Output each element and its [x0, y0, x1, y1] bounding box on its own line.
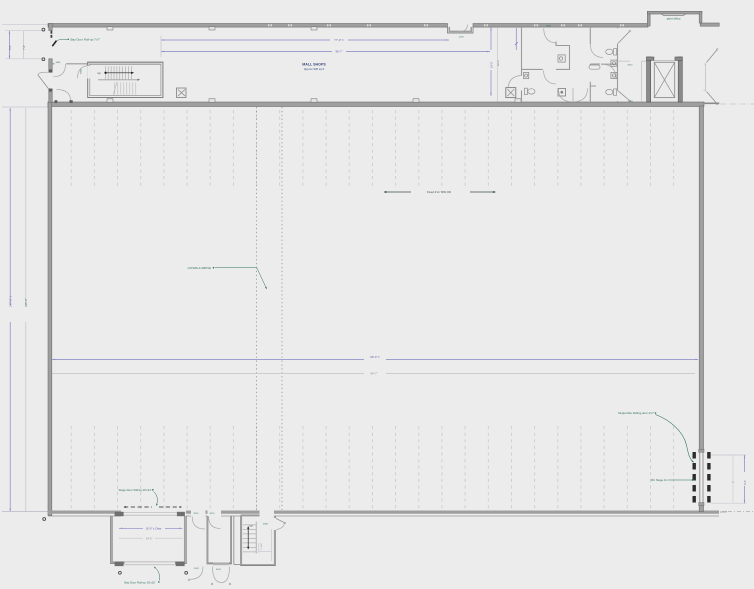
svg-text:96'-7": 96'-7" [335, 50, 342, 54]
svg-text:gated drilling: gated drilling [667, 18, 681, 21]
svg-text:6070: 6070 [216, 569, 222, 571]
svg-text:3070: 3070 [628, 65, 634, 67]
svg-text:77'-0" ±: 77'-0" ± [334, 38, 344, 42]
svg-text:Stage Door Sliding 16'x14': Stage Door Sliding 16'x14' [119, 488, 152, 492]
svg-text:3070: 3070 [459, 37, 465, 39]
svg-text:Single Man Rolling door 4'x7': Single Man Rolling door 4'x7' [618, 411, 655, 415]
svg-text:245'-0": 245'-0" [24, 298, 28, 307]
svg-text:3068: 3068 [546, 26, 552, 28]
svg-text:14'-0": 14'-0" [146, 536, 153, 540]
svg-text:3070: 3070 [194, 568, 200, 570]
svg-text:3070: 3070 [210, 513, 216, 515]
svg-text:Fixed 2'x1' MW OD: Fixed 2'x1' MW OD [427, 190, 451, 194]
svg-text:3068: 3068 [263, 524, 269, 526]
svg-text:CATWALK ABOVE: CATWALK ABOVE [188, 266, 212, 270]
svg-text:3668: 3668 [81, 68, 83, 74]
svg-text:4'-0": 4'-0" [743, 480, 747, 485]
svg-text:Bay Door Roll-up 10'x10': Bay Door Roll-up 10'x10' [125, 580, 156, 584]
svg-text:up: up [98, 71, 102, 75]
svg-text:Bay Door Roll-up 7'x7': Bay Door Roll-up 7'x7' [71, 38, 101, 42]
svg-text:7'-91/2": 7'-91/2" [261, 542, 263, 550]
svg-text:94'-7": 94'-7" [370, 372, 377, 376]
svg-text:7'-0": 7'-0" [22, 45, 26, 50]
svg-text:RU Stage 4x: RU Stage 4x [651, 478, 667, 482]
svg-text:96'-0" ±: 96'-0" ± [370, 355, 380, 359]
svg-text:3070: 3070 [628, 101, 634, 103]
svg-text:247'-6" ±: 247'-6" ± [9, 296, 13, 307]
svg-text:grade: grade [720, 510, 727, 514]
svg-text:19'-5": 19'-5" [490, 61, 494, 68]
svg-text:3668: 3668 [56, 62, 62, 64]
svg-text:9'-0": 9'-0" [8, 45, 12, 50]
svg-text:3070: 3070 [194, 513, 200, 515]
svg-text:16'-0" ± Clear: 16'-0" ± Clear [146, 526, 162, 530]
svg-text:Approx 936 sq ft: Approx 936 sq ft [304, 67, 325, 71]
svg-text:up: up [250, 524, 254, 528]
